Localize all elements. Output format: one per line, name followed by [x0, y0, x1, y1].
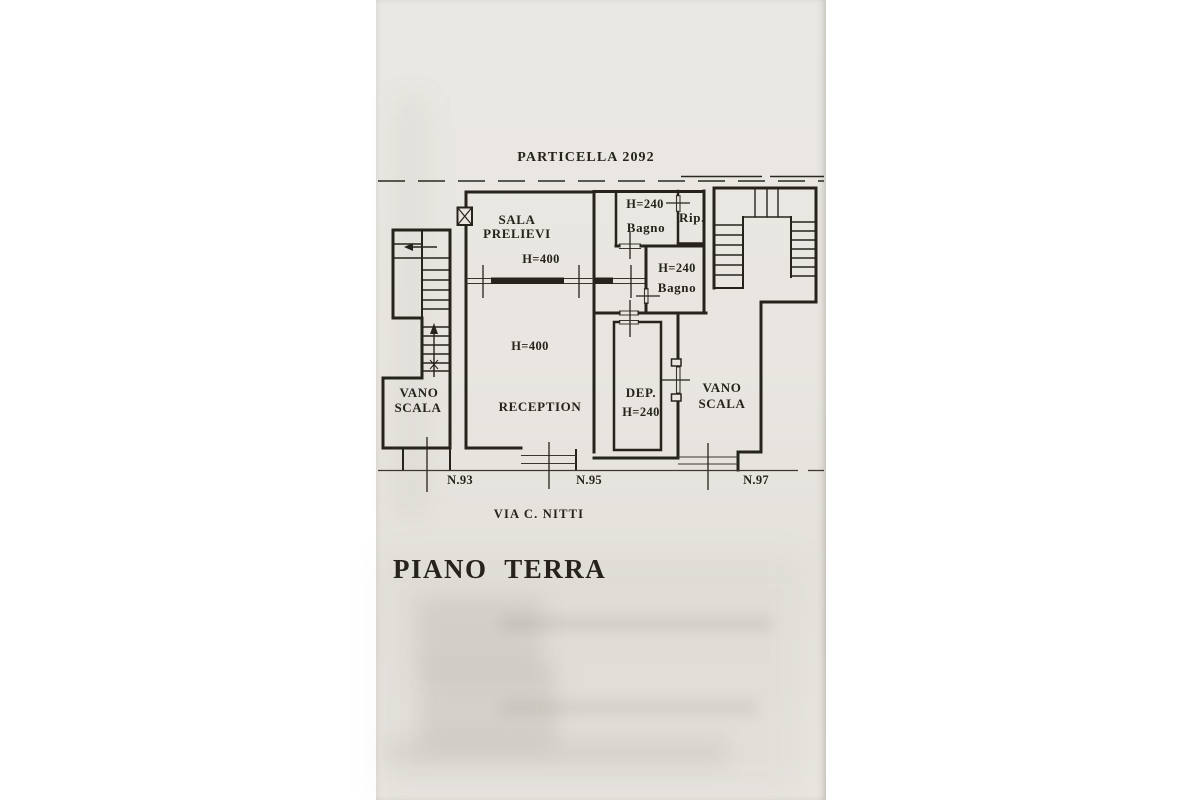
plan-title: PIANO TERRA — [393, 554, 606, 584]
entrance-n95 — [521, 442, 576, 489]
svg-text:H=400: H=400 — [511, 339, 549, 353]
svg-text:Bagno: Bagno — [658, 280, 696, 295]
street-name-label: VIA C. NITTI — [494, 507, 584, 521]
divider-wall — [466, 265, 646, 298]
svg-text:H=240: H=240 — [626, 197, 664, 211]
svg-text:Bagno: Bagno — [627, 220, 665, 235]
svg-text:H=240: H=240 — [622, 405, 660, 419]
room-label-bagno-mid: H=240 Bagno — [658, 261, 696, 295]
svg-text:H=400: H=400 — [522, 252, 560, 266]
room-label-vano-scala-right: VANO SCALA — [698, 380, 745, 411]
svg-text:VANO: VANO — [702, 380, 741, 395]
room-label-bagno-top: H=240 Bagno — [626, 197, 665, 235]
entrance-n97 — [678, 443, 738, 490]
room-label-dep: DEP. H=240 — [622, 385, 660, 419]
right-stair-structure — [714, 188, 816, 470]
floor-plan-svg: PARTICELLA 2092 SALA PRELIEVI H=400 H=40… — [0, 0, 1200, 800]
room-label-sala-prelievi: SALA PRELIEVI H=400 — [483, 212, 560, 266]
svg-text:RECEPTION: RECEPTION — [499, 399, 582, 414]
room-label-ripostiglio: Rip. — [679, 210, 705, 225]
lot-boundary-line — [378, 177, 824, 182]
room-label-vano-scala-left: VANO SCALA — [394, 385, 441, 415]
left-stair-structure — [383, 230, 450, 448]
street-number-97: N.97 — [743, 473, 769, 487]
stair-arrow-up-icon — [430, 323, 438, 377]
street-number-95: N.95 — [576, 473, 602, 487]
svg-text:PRELIEVI: PRELIEVI — [483, 226, 551, 241]
parcel-label: PARTICELLA 2092 — [517, 150, 655, 165]
room-label-reception: H=400 RECEPTION — [499, 339, 582, 414]
svg-text:SCALA: SCALA — [698, 396, 745, 411]
entrance-n93 — [403, 437, 450, 492]
svg-text:H=240: H=240 — [658, 261, 696, 275]
svg-text:SALA: SALA — [498, 212, 535, 227]
pillar-symbol — [458, 208, 473, 226]
svg-text:VANO: VANO — [399, 385, 438, 400]
street-number-93: N.93 — [447, 473, 473, 487]
page: { "document": { "plan_title": "PIANO TER… — [0, 0, 1200, 800]
svg-text:SCALA: SCALA — [394, 400, 441, 415]
svg-text:DEP.: DEP. — [626, 385, 656, 400]
